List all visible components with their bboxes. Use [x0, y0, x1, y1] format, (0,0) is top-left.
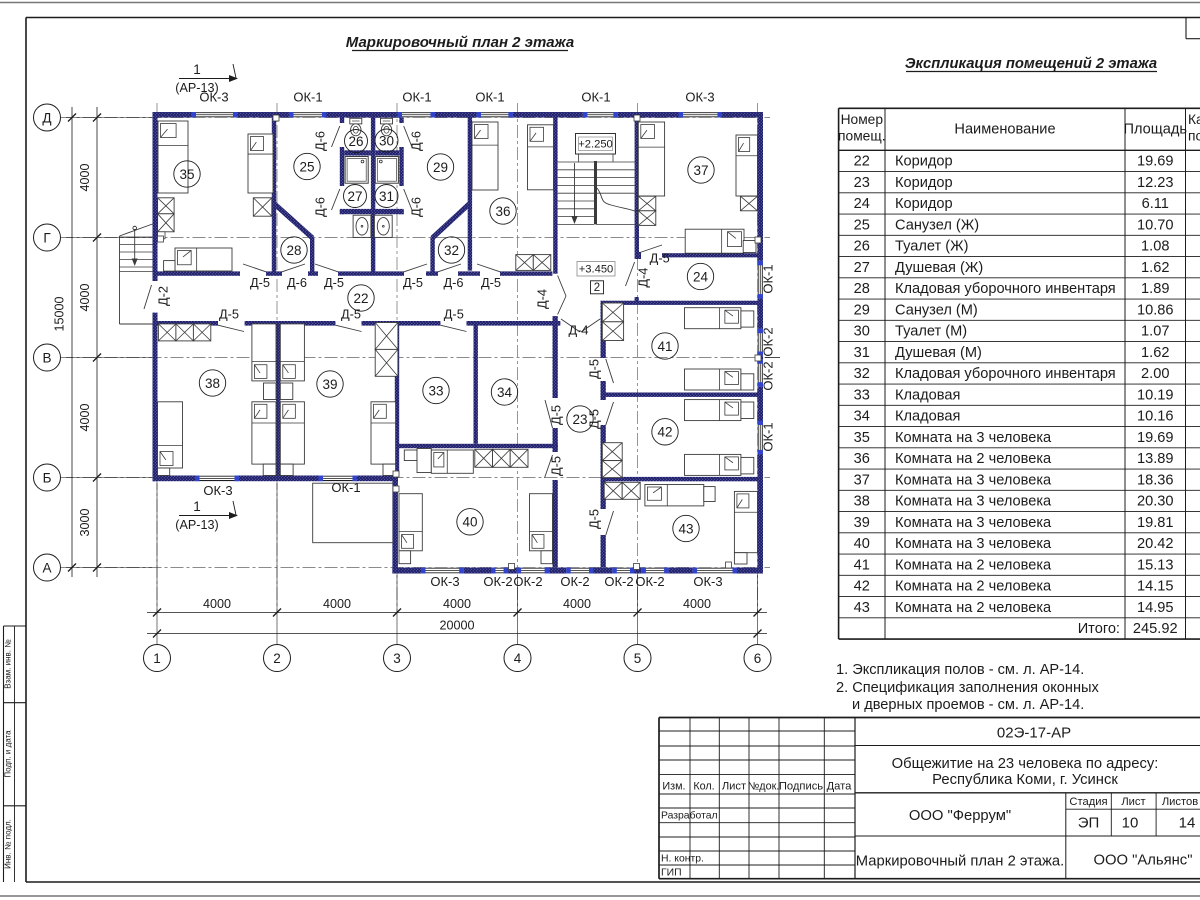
svg-text:20000: 20000: [439, 619, 474, 633]
svg-text:ОК-3: ОК-3: [693, 574, 722, 589]
svg-text:30: 30: [379, 133, 394, 148]
svg-text:33: 33: [428, 383, 443, 398]
svg-text:по: по: [1188, 129, 1200, 144]
svg-text:ОК-3: ОК-3: [203, 483, 232, 498]
svg-text:Кол.: Кол.: [693, 781, 714, 793]
svg-text:В: В: [42, 350, 51, 365]
svg-text:32: 32: [854, 366, 870, 382]
svg-text:Комната на 3 человека: Комната на 3 человека: [895, 472, 1052, 488]
svg-text:Д-5: Д-5: [444, 307, 464, 322]
svg-text:35: 35: [854, 430, 870, 446]
svg-text:6.11: 6.11: [1142, 196, 1169, 212]
svg-text:Д-2: Д-2: [156, 286, 171, 306]
svg-text:ОК-2: ОК-2: [761, 361, 776, 390]
svg-text:3000: 3000: [78, 508, 92, 536]
svg-text:10.86: 10.86: [1137, 302, 1174, 318]
svg-text:42: 42: [854, 579, 870, 595]
svg-text:ООО "Феррум": ООО "Феррум": [909, 808, 1011, 824]
svg-text:4000: 4000: [683, 597, 711, 611]
svg-text:Д-5: Д-5: [341, 307, 361, 322]
svg-text:3: 3: [393, 651, 401, 666]
svg-text:Площадь: Площадь: [1123, 122, 1187, 138]
svg-text:(АР-13): (АР-13): [175, 518, 218, 532]
svg-text:Наименование: Наименование: [954, 122, 1055, 138]
svg-text:Маркировочный план 2 этажа.: Маркировочный план 2 этажа.: [856, 854, 1064, 870]
svg-text:Д-5: Д-5: [250, 275, 270, 290]
svg-text:4000: 4000: [78, 163, 92, 191]
svg-text:Комната на 2 человека: Комната на 2 человека: [895, 579, 1052, 595]
svg-text:Разработал: Разработал: [661, 810, 718, 822]
svg-text:Лист: Лист: [1121, 796, 1145, 808]
svg-text:32: 32: [444, 243, 459, 258]
svg-text:Номер: Номер: [841, 112, 884, 127]
svg-text:1. Экспликация полов - см. л.: 1. Экспликация полов - см. л. АР-14.: [836, 662, 1084, 678]
svg-text:14.95: 14.95: [1137, 600, 1174, 616]
svg-text:10.16: 10.16: [1137, 409, 1174, 425]
svg-text:29: 29: [433, 160, 448, 175]
svg-text:ОК-2: ОК-2: [560, 574, 589, 589]
svg-text:ОК-2: ОК-2: [483, 574, 512, 589]
svg-text:1.89: 1.89: [1141, 281, 1169, 297]
svg-text:Подпись: Подпись: [779, 781, 823, 793]
svg-text:39: 39: [854, 515, 870, 531]
svg-text:Д-4: Д-4: [535, 289, 550, 309]
svg-text:Д-6: Д-6: [287, 275, 307, 290]
svg-text:Коридор: Коридор: [895, 175, 953, 191]
svg-text:43: 43: [678, 521, 693, 536]
svg-text:ОК-2: ОК-2: [604, 574, 633, 589]
svg-text:27: 27: [347, 189, 362, 204]
svg-text:Д-5: Д-5: [549, 405, 564, 425]
svg-text:10.70: 10.70: [1137, 217, 1174, 233]
svg-text:4000: 4000: [78, 283, 92, 311]
svg-text:ОК-2: ОК-2: [635, 574, 664, 589]
svg-text:1: 1: [193, 62, 201, 77]
svg-text:1.08: 1.08: [1141, 239, 1169, 255]
svg-text:+2.250: +2.250: [578, 138, 613, 150]
svg-text:23: 23: [854, 175, 870, 191]
svg-text:19.81: 19.81: [1137, 515, 1174, 531]
svg-text:Д-5: Д-5: [324, 275, 344, 290]
svg-text:6: 6: [754, 651, 762, 666]
svg-text:Д-5: Д-5: [549, 456, 564, 476]
svg-text:Б: Б: [43, 470, 52, 485]
svg-text:Взам. инв. №: Взам. инв. №: [4, 639, 13, 689]
svg-text:23: 23: [572, 412, 587, 427]
svg-text:Экспликация помещений 2 этажа: Экспликация помещений 2 этажа: [905, 56, 1157, 72]
svg-text:А: А: [42, 560, 51, 575]
svg-text:25: 25: [854, 217, 870, 233]
svg-text:Д-6: Д-6: [409, 131, 424, 151]
svg-text:Д-4: Д-4: [568, 323, 588, 338]
svg-text:2: 2: [273, 651, 281, 666]
svg-text:и дверных проемов - см. л. АР-: и дверных проемов - см. л. АР-14.: [852, 697, 1084, 713]
svg-text:Санузел (М): Санузел (М): [895, 302, 978, 318]
svg-text:Д-6: Д-6: [313, 131, 328, 151]
svg-text:15.13: 15.13: [1137, 557, 1174, 573]
svg-text:5: 5: [634, 651, 642, 666]
svg-text:10.19: 10.19: [1137, 387, 1174, 403]
svg-text:№док.: №док.: [748, 781, 780, 793]
svg-text:14.15: 14.15: [1137, 579, 1174, 595]
svg-text:Республика Коми, г. Усинск: Республика Коми, г. Усинск: [932, 772, 1118, 788]
svg-text:Г: Г: [43, 230, 51, 245]
svg-text:26: 26: [348, 134, 363, 149]
svg-text:42: 42: [657, 425, 672, 440]
svg-text:22: 22: [353, 291, 368, 306]
svg-text:37: 37: [693, 163, 708, 178]
svg-text:1: 1: [193, 499, 201, 514]
svg-text:38: 38: [854, 494, 870, 510]
svg-text:Д-4: Д-4: [635, 268, 650, 288]
svg-text:1: 1: [153, 651, 161, 666]
svg-text:Комната на 3 человека: Комната на 3 человека: [895, 536, 1052, 552]
svg-text:Душевая (М): Душевая (М): [895, 345, 982, 361]
svg-text:ОК-1: ОК-1: [293, 90, 322, 105]
svg-text:ОК-3: ОК-3: [430, 574, 459, 589]
svg-text:1.62: 1.62: [1141, 345, 1169, 361]
svg-text:10: 10: [1122, 815, 1139, 832]
svg-text:ОК-1: ОК-1: [761, 264, 776, 293]
svg-text:39: 39: [322, 377, 337, 392]
svg-text:Кладовая уборочного инвентаря: Кладовая уборочного инвентаря: [895, 281, 1116, 297]
svg-text:33: 33: [854, 387, 870, 403]
svg-text:Комната на 3 человека: Комната на 3 человека: [895, 430, 1052, 446]
svg-text:Комната на 2 человека: Комната на 2 человека: [895, 600, 1052, 616]
svg-text:Стадия: Стадия: [1069, 796, 1107, 808]
svg-text:4000: 4000: [323, 597, 351, 611]
svg-text:37: 37: [854, 472, 870, 488]
svg-text:Н. контр.: Н. контр.: [661, 854, 704, 865]
svg-text:Д-6: Д-6: [409, 197, 424, 217]
svg-text:Комната на 3 человека: Комната на 3 человека: [895, 494, 1052, 510]
svg-text:Комната на 2 человека: Комната на 2 человека: [895, 557, 1052, 573]
svg-text:4000: 4000: [78, 403, 92, 431]
svg-text:41: 41: [657, 339, 672, 354]
svg-text:38: 38: [205, 376, 220, 391]
svg-text:Инв. № подл.: Инв. № подл.: [4, 819, 13, 869]
svg-text:ОК-3: ОК-3: [685, 90, 714, 105]
svg-text:2. Спецификация заполнения око: 2. Спецификация заполнения оконных: [836, 680, 1099, 696]
svg-text:Итого:: Итого:: [1078, 621, 1120, 637]
svg-text:Д-6: Д-6: [443, 275, 463, 290]
svg-text:Д-5: Д-5: [587, 359, 602, 379]
svg-text:02Э-17-АР: 02Э-17-АР: [997, 725, 1071, 742]
svg-text:14: 14: [1179, 815, 1196, 832]
svg-text:Кладовая уборочного инвентаря: Кладовая уборочного инвентаря: [895, 366, 1116, 382]
svg-text:Д: Д: [42, 110, 51, 125]
svg-text:Комната на 2 человека: Комната на 2 человека: [895, 451, 1052, 467]
svg-text:34: 34: [497, 385, 513, 400]
svg-text:Санузел (Ж): Санузел (Ж): [895, 217, 979, 233]
svg-text:Коридор: Коридор: [895, 196, 953, 212]
svg-text:13.89: 13.89: [1137, 451, 1174, 467]
svg-text:Кладовая: Кладовая: [895, 409, 960, 425]
svg-text:31: 31: [854, 345, 870, 361]
svg-text:ОК-1: ОК-1: [402, 90, 431, 105]
svg-text:35: 35: [179, 167, 194, 182]
svg-text:ОК-2: ОК-2: [761, 327, 776, 356]
svg-text:ОК-1: ОК-1: [331, 480, 360, 495]
svg-text:15000: 15000: [53, 296, 67, 331]
svg-text:Изм.: Изм.: [662, 781, 685, 793]
svg-text:24: 24: [854, 196, 870, 212]
svg-text:25: 25: [299, 159, 314, 174]
svg-text:Д-5: Д-5: [403, 275, 423, 290]
svg-text:36: 36: [495, 204, 510, 219]
svg-text:4: 4: [514, 651, 522, 666]
svg-text:41: 41: [854, 557, 870, 573]
svg-text:Д-6: Д-6: [313, 197, 328, 217]
svg-text:Ка: Ка: [1188, 112, 1200, 127]
svg-text:Д-5: Д-5: [481, 275, 501, 290]
svg-text:(АР-13): (АР-13): [175, 81, 218, 95]
svg-text:ОК-1: ОК-1: [761, 422, 776, 451]
svg-text:30: 30: [854, 324, 870, 340]
svg-text:2: 2: [594, 282, 600, 294]
svg-text:4000: 4000: [443, 597, 471, 611]
svg-text:31: 31: [379, 189, 394, 204]
svg-text:Д-5: Д-5: [219, 307, 239, 322]
svg-text:Д-5: Д-5: [650, 250, 670, 265]
svg-text:Душевая (Ж): Душевая (Ж): [895, 260, 983, 276]
svg-text:Комната на 3 человека: Комната на 3 человека: [895, 515, 1052, 531]
svg-text:28: 28: [854, 281, 870, 297]
svg-text:34: 34: [854, 409, 870, 425]
svg-text:1.62: 1.62: [1141, 260, 1169, 276]
svg-text:+3.450: +3.450: [579, 264, 614, 276]
svg-text:19.69: 19.69: [1137, 154, 1174, 170]
svg-text:ОК-1: ОК-1: [475, 90, 504, 105]
svg-text:Д-5: Д-5: [587, 509, 602, 529]
svg-text:43: 43: [854, 600, 870, 616]
svg-text:12.23: 12.23: [1137, 175, 1174, 191]
svg-text:Д-5: Д-5: [587, 409, 602, 429]
svg-text:18.36: 18.36: [1137, 472, 1174, 488]
svg-text:ОК-1: ОК-1: [581, 90, 610, 105]
svg-text:20.30: 20.30: [1137, 494, 1174, 510]
svg-text:Дата: Дата: [827, 781, 853, 793]
svg-text:29: 29: [854, 302, 870, 318]
svg-text:28: 28: [286, 243, 301, 258]
svg-text:Подп. и дата: Подп. и дата: [4, 730, 13, 778]
svg-text:1.07: 1.07: [1141, 324, 1169, 340]
svg-text:Маркировочный план 2 этажа: Маркировочный план 2 этажа: [346, 34, 574, 51]
svg-text:19.69: 19.69: [1137, 430, 1174, 446]
svg-text:Листов: Листов: [1162, 796, 1198, 808]
svg-text:Кладовая: Кладовая: [895, 387, 960, 403]
svg-text:40: 40: [854, 536, 870, 552]
svg-text:Туалет (Ж): Туалет (Ж): [895, 239, 968, 255]
svg-text:26: 26: [854, 239, 870, 255]
svg-text:Коридор: Коридор: [895, 154, 953, 170]
svg-text:36: 36: [854, 451, 870, 467]
svg-text:4000: 4000: [563, 597, 591, 611]
svg-text:40: 40: [462, 515, 477, 530]
svg-text:помещ.: помещ.: [838, 129, 886, 144]
svg-text:Туалет (М): Туалет (М): [895, 324, 967, 340]
svg-text:ООО "Альянс": ООО "Альянс": [1094, 853, 1193, 869]
svg-text:Общежитие на 23 человека по ад: Общежитие на 23 человека по адресу:: [892, 756, 1159, 772]
svg-text:4000: 4000: [203, 597, 231, 611]
svg-text:2.00: 2.00: [1141, 366, 1169, 382]
svg-text:24: 24: [693, 269, 709, 284]
svg-text:Лист: Лист: [722, 781, 746, 793]
svg-text:20.42: 20.42: [1137, 536, 1174, 552]
svg-text:27: 27: [854, 260, 870, 276]
svg-text:22: 22: [854, 154, 870, 170]
svg-text:245.92: 245.92: [1133, 621, 1178, 637]
svg-text:ГИП: ГИП: [661, 868, 682, 879]
svg-text:ЭП: ЭП: [1078, 815, 1100, 832]
